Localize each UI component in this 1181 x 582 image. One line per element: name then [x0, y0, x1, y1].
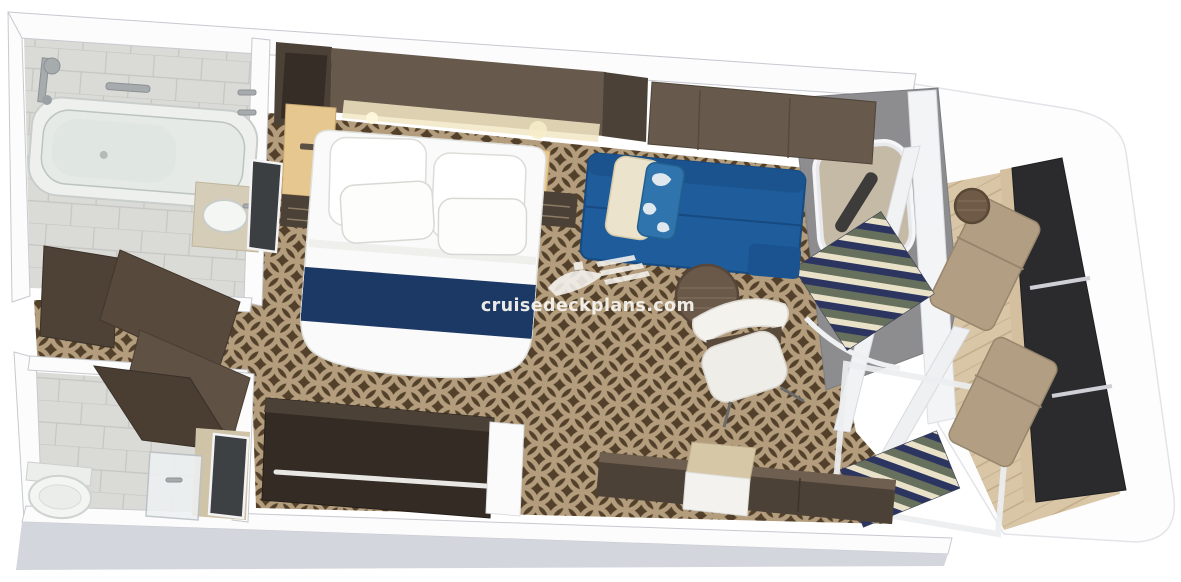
floorplan-svg: cruisedeckplans.com	[0, 0, 1181, 582]
sofa-chaise	[747, 243, 802, 279]
bed	[297, 129, 547, 384]
watermark-text: cruisedeckplans.com	[481, 296, 695, 316]
bed-pillow	[340, 180, 435, 244]
desk	[683, 442, 756, 516]
overhead-cabinet-right	[602, 72, 648, 142]
balcony-round-table	[955, 189, 989, 223]
table-lamp-glow	[529, 121, 547, 139]
shower-glass	[146, 452, 202, 520]
closet-open	[262, 398, 494, 518]
white-pillar	[486, 422, 524, 516]
bathroom-mirror	[248, 160, 282, 252]
bed-pillow	[438, 198, 526, 255]
faucet-icon	[166, 478, 182, 482]
stateroom-floorplan-render: cruisedeckplans.com	[0, 0, 1181, 582]
wall-sconce-light	[366, 112, 378, 124]
vanity-mirror	[209, 434, 248, 518]
